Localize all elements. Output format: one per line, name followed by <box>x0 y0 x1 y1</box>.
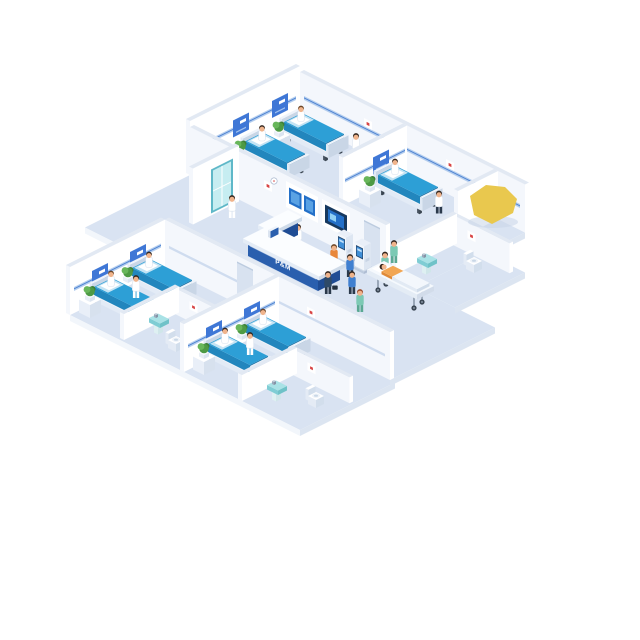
faucet <box>422 253 426 258</box>
faucet <box>154 313 158 318</box>
patient-sitting <box>146 252 153 268</box>
patient-sitting <box>259 125 266 141</box>
patient-sitting <box>108 271 115 287</box>
patient-sitting <box>392 159 399 175</box>
faucet <box>272 380 276 385</box>
patient-sitting <box>260 309 267 325</box>
patient-sitting <box>222 328 229 344</box>
hospital-illustration-stage: P&M <box>0 0 640 640</box>
hospital-isometric-illustration: P&M <box>0 0 640 640</box>
patient-sitting <box>298 106 305 122</box>
